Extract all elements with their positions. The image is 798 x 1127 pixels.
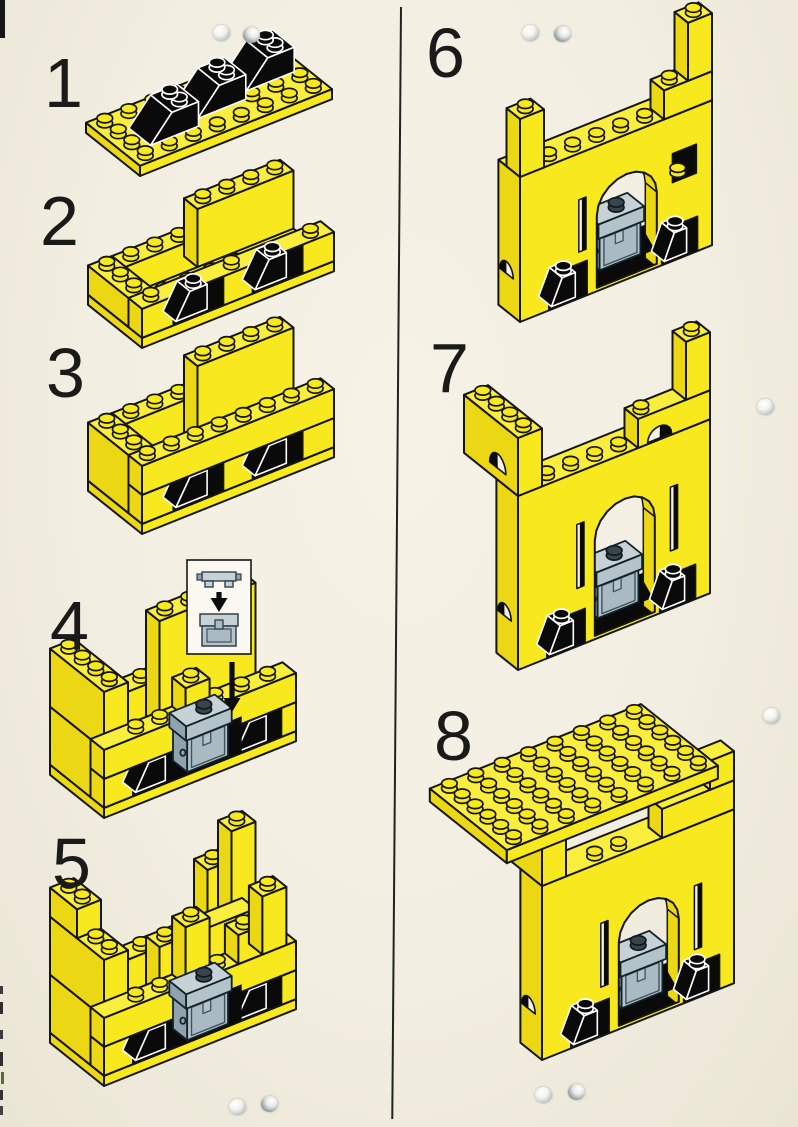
scan-edge-artifact bbox=[0, 986, 3, 994]
scan-edge-artifact bbox=[0, 1002, 3, 1014]
punch-hole bbox=[229, 1099, 246, 1115]
step-8-number: 8 bbox=[434, 701, 473, 771]
punch-hole bbox=[261, 1096, 278, 1112]
instruction-page: 1 2 3 4 5 6 7 8 bbox=[0, 0, 798, 1127]
punch-hole bbox=[522, 25, 539, 41]
punch-hole bbox=[213, 25, 230, 41]
scan-edge-artifact bbox=[0, 0, 5, 38]
punch-hole bbox=[554, 26, 571, 42]
step-2-number: 2 bbox=[40, 186, 79, 256]
step-6-figure bbox=[498, 2, 712, 322]
punch-hole bbox=[535, 1087, 552, 1103]
scan-edge-artifact bbox=[1, 1072, 4, 1084]
step-1-figure bbox=[86, 30, 332, 176]
punch-hole bbox=[763, 708, 780, 724]
step-3-figure bbox=[88, 317, 334, 534]
step-7-figure bbox=[464, 321, 710, 670]
step-2-figure bbox=[88, 160, 334, 348]
step-8-figure bbox=[430, 704, 734, 1060]
scan-edge-artifact bbox=[0, 1106, 3, 1115]
scan-edge-artifact bbox=[0, 1030, 3, 1039]
step-7-number: 7 bbox=[430, 333, 469, 403]
step-6-number: 6 bbox=[426, 18, 465, 88]
step-1-number: 1 bbox=[44, 48, 83, 118]
step-4-number: 4 bbox=[50, 591, 89, 661]
punch-hole bbox=[568, 1084, 585, 1100]
inset-diagram bbox=[187, 560, 251, 654]
step-3-number: 3 bbox=[46, 338, 85, 408]
punch-hole bbox=[757, 399, 774, 415]
scan-edge-artifact bbox=[0, 1052, 3, 1066]
punch-hole bbox=[243, 27, 260, 43]
scan-edge-artifact bbox=[0, 1090, 3, 1100]
step-5-number: 5 bbox=[52, 828, 91, 898]
